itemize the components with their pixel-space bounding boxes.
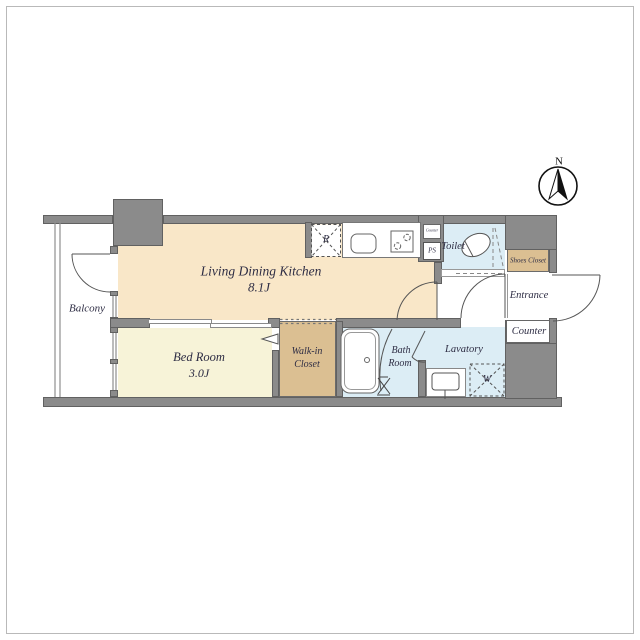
room-label-toilet: Toilet bbox=[441, 242, 465, 253]
wall-bath-top bbox=[336, 318, 461, 328]
wall-bottom-right-block bbox=[505, 343, 557, 399]
room-label-wic-1: Walk-in bbox=[292, 347, 323, 357]
room-label-lavatory: Lavatory bbox=[445, 345, 483, 356]
sliding-door-panel-2 bbox=[210, 323, 272, 328]
wall-bath-lavatory bbox=[418, 360, 426, 397]
fixture-label-mini-counter: Counter bbox=[426, 229, 438, 233]
wall-bottom bbox=[43, 397, 562, 407]
room-label-entrance: Entrance bbox=[510, 291, 549, 302]
room-label-shoes-closet: Shoes Closet bbox=[510, 258, 546, 265]
wall-wic-bath bbox=[336, 321, 343, 397]
wall-right-shoes bbox=[549, 249, 557, 273]
wic-opening-panel bbox=[272, 328, 279, 350]
room-label-bedroom: Bed Room bbox=[173, 351, 225, 364]
wall-left-d bbox=[110, 390, 118, 397]
wall-ldk-bed-left bbox=[110, 318, 150, 328]
room-label-balcony: Balcony bbox=[69, 304, 105, 315]
room-label-bath-1: Bath bbox=[392, 346, 411, 356]
room-label-counter: Counter bbox=[512, 327, 546, 338]
fixture-label-washer: W bbox=[483, 375, 491, 385]
fixture-label-pipe-space: PS bbox=[428, 248, 436, 255]
sliding-door-panel-1 bbox=[148, 319, 212, 324]
wall-balcony-top bbox=[43, 215, 113, 224]
floor-plan: Living Dining Kitchen 8.1J Bed Room 3.0J… bbox=[0, 0, 640, 640]
wash-basin-box bbox=[426, 368, 466, 397]
room-label-ldk: Living Dining Kitchen bbox=[201, 264, 322, 278]
room-label-wic-2: Closet bbox=[294, 360, 320, 370]
compass-north-label: N bbox=[555, 157, 563, 168]
wall-pillar-block bbox=[113, 199, 163, 246]
room-size-bedroom: 3.0J bbox=[189, 367, 209, 379]
fixture-label-refrigerator: R bbox=[323, 235, 329, 245]
wall-left-window-bar bbox=[110, 359, 118, 364]
wall-left-a bbox=[110, 246, 118, 254]
toilet-door-strip bbox=[441, 269, 505, 277]
kitchen-counter-strip bbox=[342, 222, 421, 258]
room-size-ldk: 8.1J bbox=[248, 281, 270, 294]
wall-left-b bbox=[110, 291, 118, 296]
wall-right-top-block bbox=[505, 215, 557, 250]
wall-right-mid bbox=[549, 318, 557, 344]
wall-kitchen-stub bbox=[305, 222, 312, 258]
room-label-bath-2: Room bbox=[388, 359, 411, 369]
wall-bedroom-wic bbox=[272, 350, 279, 397]
